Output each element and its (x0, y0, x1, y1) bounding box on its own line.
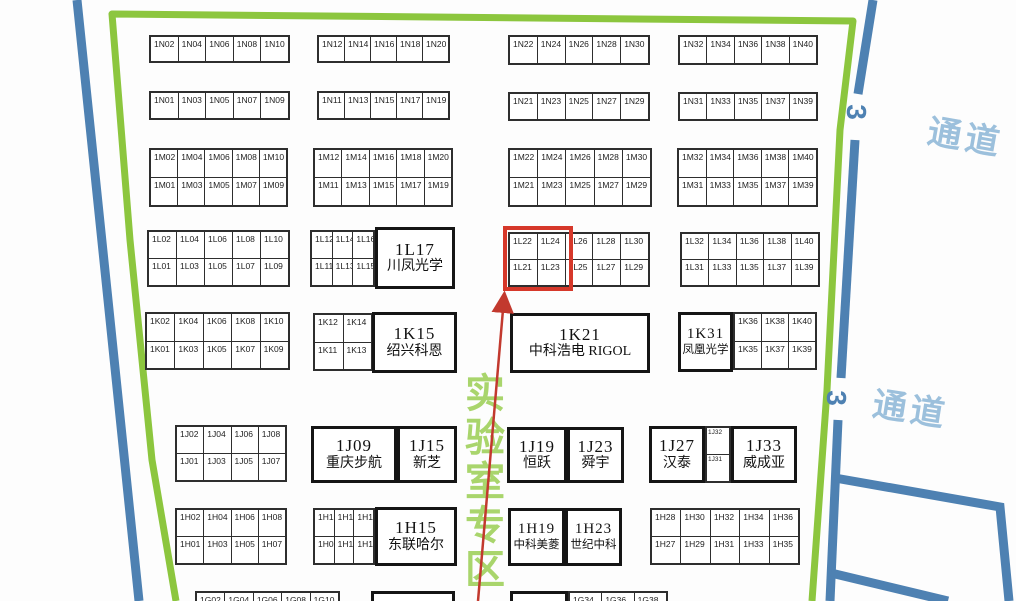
booth-cell: 1N27 (592, 94, 620, 119)
booth-cell: 1K36 (735, 314, 761, 341)
booth-company-name: 东联哈尔 (388, 538, 444, 555)
booth-cell: 1J01 (177, 454, 203, 480)
booth-block: 1K021K041K061K081K101K011K031K051K071K09 (145, 312, 290, 370)
booth-block: 1N211N231N251N271N29 (508, 92, 650, 121)
booth-cell: 1N28 (592, 37, 620, 63)
big-booth (510, 591, 568, 601)
booth-cell: 1L03 (176, 259, 204, 285)
booth-cell: 1H05 (231, 537, 258, 563)
booth-block: 1N221N241N261N281N30 (508, 35, 650, 65)
booth-cell: 1H03 (203, 537, 230, 563)
big-booth: 1J15新芝 (397, 426, 457, 483)
booth-code: 1J09 (336, 436, 372, 456)
booth-cell: 1L30 (620, 234, 648, 259)
booth-code: 1J27 (659, 436, 695, 456)
booth-cell: 1H31 (710, 537, 739, 563)
booth-cell: 1M24 (537, 150, 565, 177)
booth-cell: 1L08 (232, 232, 260, 258)
booth-cell: 1L27 (592, 260, 620, 285)
booth-cell: 1M20 (424, 150, 451, 177)
booth-cell: 1M09 (259, 178, 286, 205)
booth-cell: 1G06 (253, 593, 281, 601)
booth-cell: 1M13 (341, 178, 368, 205)
booth-cell: 1H36 (769, 510, 798, 536)
booth-code: 1K15 (394, 324, 436, 344)
booth-cell: 1H01 (177, 537, 203, 563)
booth-cell: 1N07 (233, 93, 261, 118)
booth-cell: 1J06 (231, 427, 258, 453)
booth-cell: 1N09 (260, 93, 288, 118)
booth-cell: 1N03 (178, 93, 206, 118)
booth-cell: 1H09 (315, 537, 334, 563)
booth-cell: 1K39 (788, 342, 815, 369)
big-booth: 1K21中科浩电 RIGOL (510, 313, 650, 373)
booth-cell: 1M10 (259, 150, 286, 177)
booth-cell: 1L29 (620, 260, 648, 285)
aisle-line-right-top (858, 0, 873, 94)
booth-cell: 1M29 (622, 178, 650, 205)
booth-cell: 1N38 (761, 37, 788, 63)
booth-cell: 1N22 (510, 37, 537, 63)
booth-cell: 1N08 (233, 37, 261, 61)
booth-cell: 1L02 (149, 232, 176, 258)
booth-cell: 1M32 (679, 150, 706, 177)
booth-cell: 1N21 (510, 94, 537, 119)
booth-cell: 1G04 (224, 593, 252, 601)
booth-cell: 1L40 (791, 234, 818, 259)
booth-block: 1M121M141M161M181M201M111M131M151M171M19 (313, 148, 453, 207)
booth-cell: 1M19 (424, 178, 451, 205)
booth-cell: 1L07 (232, 259, 260, 285)
booth-cell: 1H30 (680, 510, 709, 536)
big-booth: 1H23世纪中科 (565, 508, 622, 566)
booth-cell: 1M12 (315, 150, 341, 177)
booth-cell: 1M07 (232, 178, 259, 205)
booth-cell: 1L01 (149, 259, 176, 285)
booth-cell: 1N35 (734, 94, 761, 119)
booth-cell: 1N06 (205, 37, 233, 61)
booth-cell: 1K14 (343, 315, 372, 342)
booth-cell: 1L38 (763, 234, 790, 259)
booth-cell: 1J02 (177, 427, 203, 453)
booth-cell: 1N01 (151, 93, 178, 118)
booth-cell: 1G08 (281, 593, 309, 601)
booth-cell: 1L28 (592, 234, 620, 259)
booth-cell: 1N39 (789, 94, 816, 119)
booth-block: 1H101H121H141H091H111H13 (313, 508, 375, 565)
big-booth: 1J23舜宇 (567, 427, 624, 483)
booth-cell: 1L16 (352, 232, 373, 258)
booth-cell: 1J08 (258, 427, 285, 453)
booth-block: 1M321M341M361M381M401M311M331M351M371M39 (677, 148, 818, 207)
booth-cell: 1H04 (203, 510, 230, 536)
booth-cell: 1H14 (353, 510, 373, 536)
booth-block: 1N011N031N051N071N09 (149, 91, 290, 120)
booth-cell: 1K08 (231, 314, 259, 341)
booth-cell: 1N25 (565, 94, 593, 119)
booth-cell: 1H02 (177, 510, 203, 536)
big-booth: 1J09重庆步航 (311, 426, 397, 483)
booth-cell: 1N15 (370, 93, 396, 118)
booth-cell: 1K12 (315, 315, 343, 342)
aisle-line-left (77, 0, 139, 601)
booth-cell: 1K03 (174, 342, 202, 369)
booth-cell: 1J07 (258, 454, 285, 480)
booth-cell: 1H11 (334, 537, 354, 563)
booth-company-name: 中科美菱 (514, 539, 560, 553)
booth-cell: 1N23 (537, 94, 565, 119)
booth-cell: 1J32 (707, 428, 729, 454)
booth-cell: 1N18 (396, 37, 422, 61)
booth-cell: 1M33 (706, 178, 734, 205)
booth-cell: 1N17 (396, 93, 422, 118)
booth-cell: 1L04 (176, 232, 204, 258)
booth-company-name: 绍兴科恩 (387, 344, 443, 361)
booth-cell: 1K09 (260, 342, 288, 369)
booth-block: 1N311N331N351N371N39 (678, 92, 818, 121)
booth-cell: 1H07 (258, 537, 285, 563)
booth-cell: 1L37 (763, 260, 790, 285)
booth-cell: 1L33 (708, 260, 735, 285)
booth-block: 1J321J31 (705, 426, 731, 483)
highlight-box (503, 226, 573, 291)
booth-company-name: 汉泰 (663, 456, 691, 473)
booth-cell: 1M15 (369, 178, 396, 205)
booth-cell: 1M04 (177, 150, 204, 177)
booth-block: 1N321N341N361N381N40 (678, 35, 818, 65)
booth-cell: 1M05 (204, 178, 231, 205)
booth-cell: 1M14 (341, 150, 368, 177)
booth-company-name: 川凤光学 (387, 259, 443, 276)
booth-cell: 1M16 (369, 150, 396, 177)
booth-code: 1K21 (559, 325, 601, 345)
booth-cell: 1M34 (706, 150, 734, 177)
booth-cell: 1N16 (370, 37, 396, 61)
booth-cell: 1K05 (203, 342, 231, 369)
booth-cell: 1H32 (710, 510, 739, 536)
booth-code: 1J33 (746, 436, 782, 456)
booth-cell: 1N04 (178, 37, 206, 61)
booth-company-name: 凤凰光学 (683, 344, 729, 358)
booth-cell: 1N12 (319, 37, 344, 61)
booth-cell: 1N26 (565, 37, 593, 63)
booth-cell: 1N36 (734, 37, 761, 63)
booth-cell: 1N10 (260, 37, 288, 61)
booth-cell: 1G02 (197, 593, 224, 601)
booth-cell: 1N33 (706, 94, 733, 119)
booth-company-name: 世纪中科 (571, 539, 617, 553)
exhibition-floorplan: 通道 通道 3 3 1N021N041N061N081N101N121N141N… (0, 0, 1016, 601)
booth-cell: 1M37 (761, 178, 789, 205)
booth-cell: 1M03 (177, 178, 204, 205)
booth-cell: 1L15 (352, 259, 373, 285)
booth-cell: 1N24 (537, 37, 565, 63)
booth-cell: 1H29 (680, 537, 709, 563)
booth-block: 1N121N141N161N181N20 (317, 35, 450, 63)
booth-cell: 1J05 (231, 454, 258, 480)
booth-cell: 1H12 (334, 510, 354, 536)
aisle-line-right-bottom (830, 420, 838, 601)
booth-cell: 1H28 (652, 510, 680, 536)
booth-cell: 1G34 (570, 593, 601, 601)
booth-cell: 1H06 (231, 510, 258, 536)
aisle-line-right-mid (841, 140, 855, 378)
booth-cell: 1N13 (344, 93, 370, 118)
booth-code: 1H23 (575, 521, 612, 538)
booth-cell: 1M35 (733, 178, 761, 205)
big-booth: 1H19中科美菱 (508, 508, 565, 566)
booth-cell: 1L11 (312, 259, 332, 285)
booth-cell: 1K13 (343, 343, 372, 370)
booth-cell: 1L13 (332, 259, 353, 285)
booth-code: 1L17 (395, 240, 435, 260)
booth-block: 1H021H041H061H081H011H031H051H07 (175, 508, 287, 565)
booth-cell: 1H10 (315, 510, 334, 536)
booth-cell: 1N05 (205, 93, 233, 118)
booth-block: 1M021M041M061M081M101M011M031M051M071M09 (149, 148, 288, 207)
booth-code: 1J15 (409, 436, 445, 456)
booth-block: 1N021N041N061N081N10 (149, 35, 290, 63)
booth-cell: 1M36 (733, 150, 761, 177)
big-booth (371, 591, 455, 601)
booth-cell: 1M06 (204, 150, 231, 177)
booth-cell: 1L31 (682, 260, 708, 285)
booth-cell: 1M17 (396, 178, 423, 205)
booth-block: 1N111N131N151N171N19 (317, 91, 450, 120)
booth-cell: 1L05 (204, 259, 232, 285)
booth-cell: 1M28 (594, 150, 622, 177)
booth-cell: 1H34 (739, 510, 768, 536)
booth-cell: 1M31 (679, 178, 706, 205)
booth-block: 1L321L341L361L381L401L311L331L351L371L39 (680, 232, 820, 287)
booth-cell: 1M38 (761, 150, 789, 177)
booth-block: 1K121K141K111K13 (313, 313, 373, 371)
booth-cell: 1N29 (620, 94, 648, 119)
booth-cell: 1N40 (789, 37, 816, 63)
booth-cell: 1N34 (706, 37, 733, 63)
zone-label: 实验室专区 (452, 372, 510, 592)
booth-cell: 1L09 (260, 259, 288, 285)
booth-cell: 1M25 (565, 178, 593, 205)
booth-cell: 1G10 (310, 593, 338, 601)
booth-cell: 1J31 (707, 455, 729, 481)
booth-cell: 1G36 (601, 593, 633, 601)
booth-cell: 1L32 (682, 234, 708, 259)
booth-cell: 1L14 (332, 232, 353, 258)
booth-cell: 1L12 (312, 232, 332, 258)
booth-company-name: 舜宇 (582, 456, 610, 473)
booth-cell: 1L34 (708, 234, 735, 259)
booth-cell: 1M30 (622, 150, 650, 177)
booth-cell: 1M27 (594, 178, 622, 205)
big-booth: 1K31凤凰光学 (678, 312, 733, 372)
booth-company-name: 新芝 (413, 456, 441, 473)
booth-cell: 1H35 (769, 537, 798, 563)
booth-cell: 1N31 (680, 94, 706, 119)
booth-code: 1H15 (395, 518, 437, 538)
booth-block: 1J021J041J061J081J011J031J051J07 (175, 425, 287, 482)
booth-cell: 1M18 (396, 150, 423, 177)
booth-cell: 1K01 (147, 342, 174, 369)
booth-company-name: 中科浩电 RIGOL (529, 344, 631, 361)
booth-cell: 1K04 (174, 314, 202, 341)
gate-number-top: 3 (840, 104, 872, 120)
booth-company-name: 威成亚 (743, 456, 785, 473)
booth-cell: 1K06 (203, 314, 231, 341)
booth-cell: 1L36 (736, 234, 763, 259)
booth-cell: 1M40 (788, 150, 816, 177)
booth-cell: 1N19 (422, 93, 448, 118)
booth-cell: 1N30 (620, 37, 648, 63)
booth-block: 1G341G361G38 (568, 591, 668, 601)
booth-cell: 1M08 (232, 150, 259, 177)
booth-cell: 1N11 (319, 93, 344, 118)
booth-cell: 1K37 (761, 342, 788, 369)
big-booth: 1J19恒跃 (507, 427, 567, 483)
booth-cell: 1L39 (791, 260, 818, 285)
booth-cell: 1M22 (510, 150, 537, 177)
booth-cell: 1L35 (736, 260, 763, 285)
booth-cell: 1K38 (761, 314, 788, 341)
booth-cell: 1N14 (344, 37, 370, 61)
aisle-line-branch (835, 478, 1009, 601)
booth-cell: 1M21 (510, 178, 537, 205)
booth-block: 1L121L141L161L111L131L15 (310, 230, 375, 287)
big-booth: 1H15东联哈尔 (375, 507, 457, 566)
booth-block: 1H281H301H321H341H361H271H291H311H331H35 (650, 508, 800, 565)
booth-code: 1K31 (687, 326, 724, 343)
booth-cell: 1N02 (151, 37, 178, 61)
booth-cell: 1K40 (788, 314, 815, 341)
gate-number-bottom: 3 (820, 390, 852, 406)
booth-cell: 1H08 (258, 510, 285, 536)
booth-cell: 1N32 (680, 37, 706, 63)
aisle-line-branch-lower (831, 573, 948, 601)
booth-cell: 1K02 (147, 314, 174, 341)
booth-code: 1J19 (519, 437, 555, 457)
booth-cell: 1M01 (151, 178, 177, 205)
booth-block: 1M221M241M261M281M301M211M231M251M271M29 (508, 148, 652, 207)
booth-cell: 1H27 (652, 537, 680, 563)
big-booth: 1J33威成亚 (731, 426, 797, 483)
booth-cell: 1L06 (204, 232, 232, 258)
booth-cell: 1N20 (422, 37, 448, 61)
booth-cell: 1G38 (634, 593, 666, 601)
booth-block: 1L021L041L061L081L101L011L031L051L071L09 (147, 230, 290, 287)
booth-block: 1G021G041G061G081G10 (195, 591, 340, 601)
booth-code: 1J23 (577, 437, 613, 457)
aisle-label-top: 通道 (924, 104, 1007, 165)
booth-company-name: 恒跃 (523, 456, 551, 473)
booth-cell: 1H13 (353, 537, 373, 563)
booth-cell: 1N37 (761, 94, 788, 119)
booth-code: 1H19 (518, 521, 555, 538)
booth-cell: 1M02 (151, 150, 177, 177)
booth-cell: 1J03 (203, 454, 230, 480)
booth-company-name: 重庆步航 (326, 456, 382, 473)
booth-cell: 1K10 (260, 314, 288, 341)
booth-cell: 1H33 (739, 537, 768, 563)
booth-cell: 1K07 (231, 342, 259, 369)
booth-cell: 1M26 (565, 150, 593, 177)
booth-cell: 1M39 (788, 178, 816, 205)
big-booth: 1L17川凤光学 (375, 227, 455, 289)
big-booth: 1J27汉泰 (649, 426, 705, 483)
booth-cell: 1M23 (537, 178, 565, 205)
booth-cell: 1M11 (315, 178, 341, 205)
aisle-label-bottom: 通道 (870, 376, 953, 436)
big-booth: 1K15绍兴科恩 (372, 312, 457, 373)
booth-cell: 1K11 (315, 343, 343, 370)
booth-block: 1K361K381K401K351K371K39 (733, 312, 817, 370)
booth-cell: 1K35 (735, 342, 761, 369)
booth-cell: 1J04 (203, 427, 230, 453)
booth-cell: 1L10 (260, 232, 288, 258)
